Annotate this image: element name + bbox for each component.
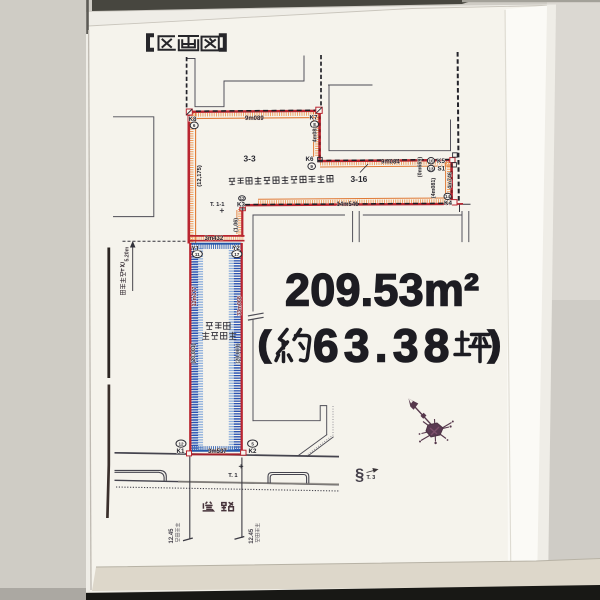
svg-text:12.45: 12.45 xyxy=(169,528,175,544)
svg-text:K5: K5 xyxy=(437,158,445,165)
svg-text:14: 14 xyxy=(445,194,451,199)
svg-text:Y2: Y2 xyxy=(232,245,240,252)
svg-text:9m084: 9m084 xyxy=(381,160,400,166)
svg-text:12m177: 12m177 xyxy=(192,287,198,307)
svg-text:14m541: 14m541 xyxy=(337,202,360,208)
svg-text:K4: K4 xyxy=(444,200,452,207)
svg-text:Y1: Y1 xyxy=(192,246,200,253)
svg-text:(0m669): (0m669) xyxy=(418,157,424,178)
svg-text:3m432: 3m432 xyxy=(205,236,224,242)
svg-text:33m068: 33m068 xyxy=(237,296,243,316)
svg-text:13: 13 xyxy=(428,166,434,171)
svg-text:12.45: 12.45 xyxy=(249,528,255,544)
svg-text:9: 9 xyxy=(310,164,313,169)
svg-text:(20,001): (20,001) xyxy=(236,343,242,363)
svg-text:(4m081): (4m081) xyxy=(431,178,437,199)
svg-text:§: § xyxy=(355,466,364,484)
svg-text:): ) xyxy=(489,326,500,364)
svg-text:12: 12 xyxy=(239,196,245,201)
svg-text:63.38: 63.38 xyxy=(313,320,455,372)
svg-text:K1: K1 xyxy=(177,448,185,455)
svg-text:6: 6 xyxy=(193,123,196,128)
svg-text:(12,175): (12,175) xyxy=(197,165,203,187)
svg-text:(: ( xyxy=(259,326,271,364)
svg-text:209.53m²: 209.53m² xyxy=(285,265,479,316)
svg-text:S1: S1 xyxy=(438,166,446,173)
svg-text:K6: K6 xyxy=(306,156,314,163)
svg-text:K7: K7 xyxy=(310,115,318,122)
svg-text:K8: K8 xyxy=(189,116,197,123)
svg-text:4m081: 4m081 xyxy=(313,126,319,143)
svg-text:5: 5 xyxy=(251,441,254,446)
svg-text:3-3: 3-3 xyxy=(244,154,256,164)
svg-text:K3: K3 xyxy=(237,201,245,208)
svg-text:11: 11 xyxy=(195,252,200,257)
svg-text:4m746: 4m746 xyxy=(448,172,454,189)
svg-text:10: 10 xyxy=(428,159,434,164)
svg-text:3m537: 3m537 xyxy=(208,449,227,455)
svg-text:T. 3: T. 3 xyxy=(367,475,376,481)
svg-text:K2: K2 xyxy=(249,448,257,455)
svg-text:(20,001): (20,001) xyxy=(191,343,197,363)
svg-text:(1,06): (1,06) xyxy=(233,218,239,232)
svg-text:17: 17 xyxy=(234,252,240,257)
svg-text:12: 12 xyxy=(178,441,184,446)
svg-text:T. 1-1: T. 1-1 xyxy=(210,202,225,208)
svg-text:T. 1: T. 1 xyxy=(228,473,238,479)
svg-text:3-16: 3-16 xyxy=(351,174,368,184)
svg-text:9m089: 9m089 xyxy=(245,116,264,122)
svg-text:5.20m: 5.20m xyxy=(125,246,131,261)
